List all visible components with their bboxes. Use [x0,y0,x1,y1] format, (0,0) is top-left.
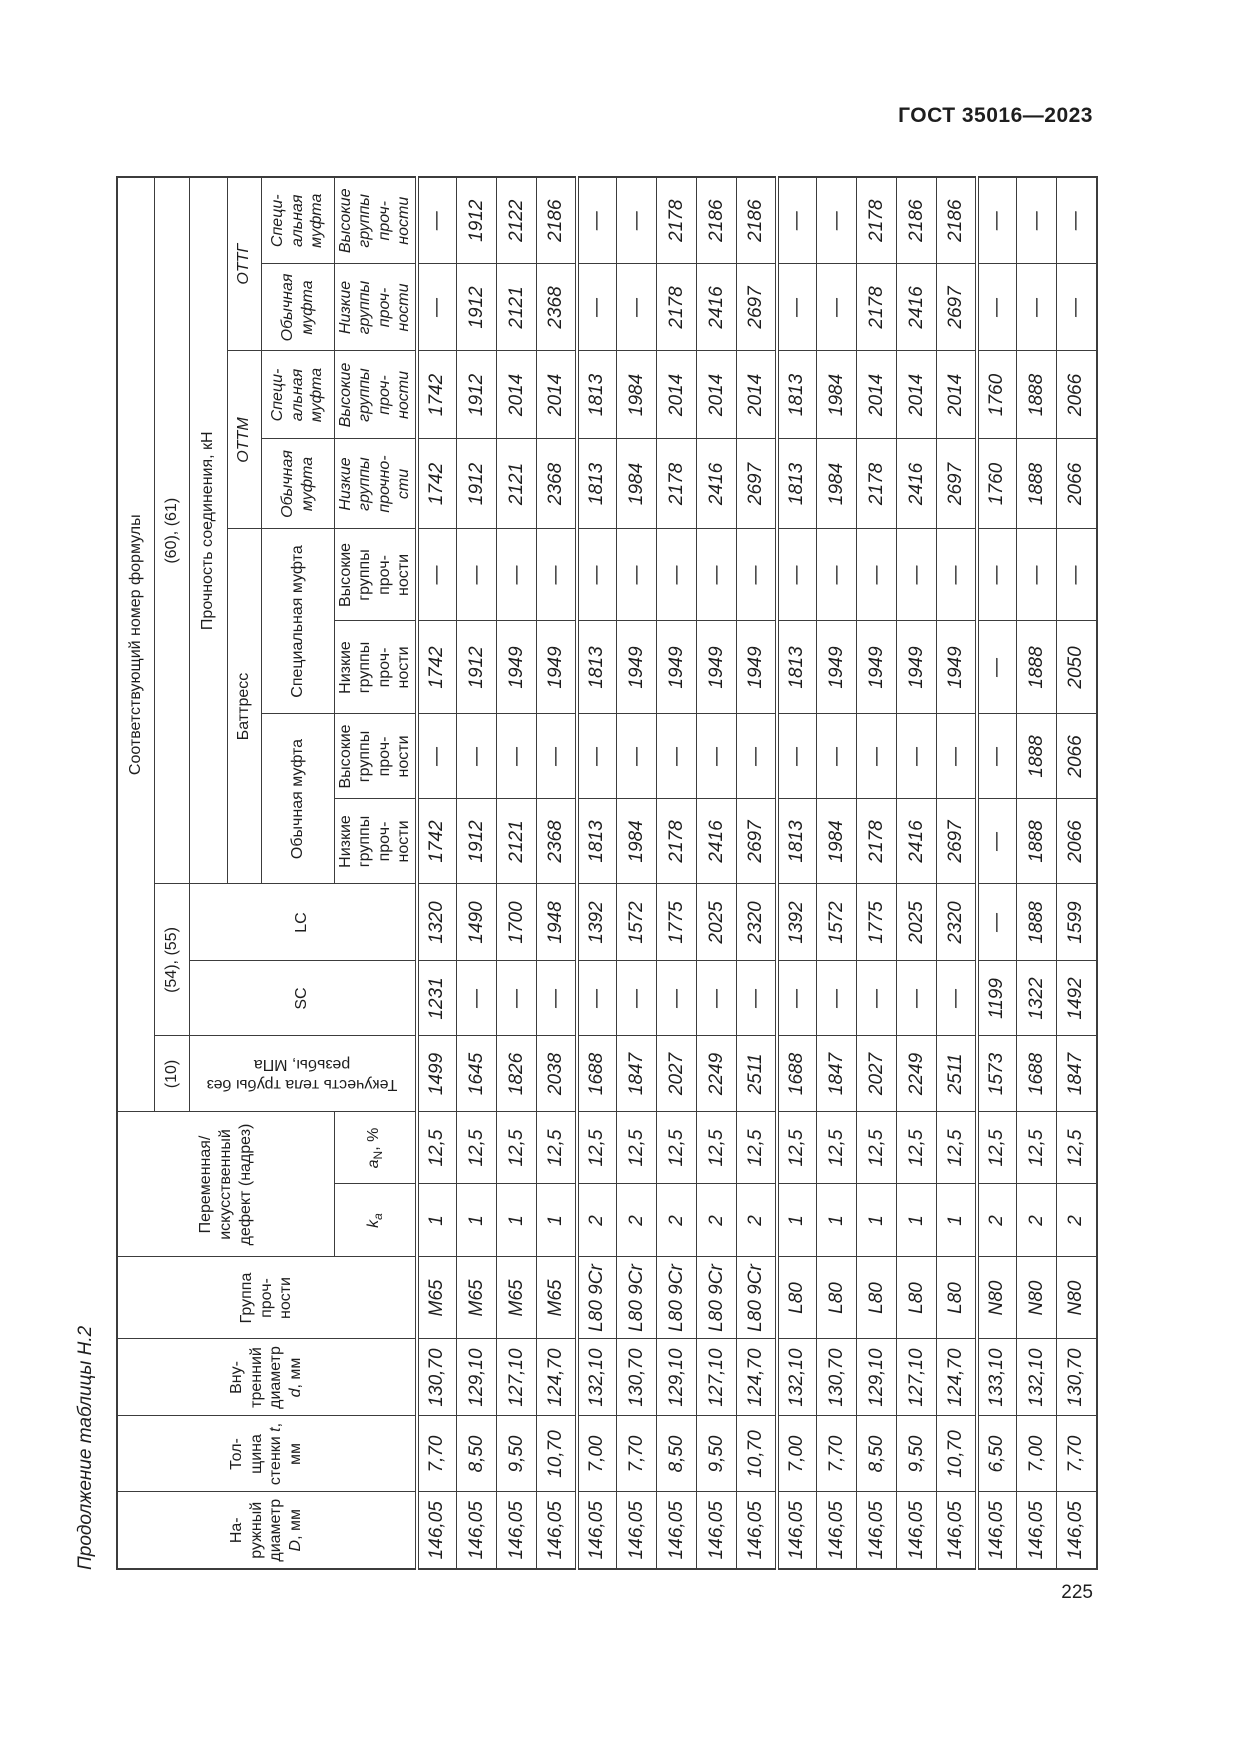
thread-group-ottm: ОТТМ [227,351,261,529]
data-cell-outer_diameter_D_mm: 146,05 [537,1492,577,1569]
data-cell-outer_diameter_D_mm: 146,05 [1017,1492,1057,1569]
data-cell-ottg_regular_low: — [817,264,857,351]
table-row: 146,058,50129,10L80112,52027—17752178—19… [857,177,897,1569]
data-cell-wall_thickness_t_mm: 7,00 [577,1416,617,1492]
data-cell-buttress_regular_high: — [817,714,857,799]
data-cell-wall_thickness_t_mm: 9,50 [497,1416,537,1492]
data-cell-a_N_percent: 12,5 [457,1112,497,1184]
data-cell-buttress_special_high: — [1057,529,1097,621]
data-cell-ottm_regular_low: 2697 [737,439,777,529]
data-cell-buttress_regular_low: 2121 [497,799,537,884]
data-cell-SC: — [817,961,857,1036]
data-cell-buttress_special_low: 1888 [1017,621,1057,714]
data-cell-SC: — [577,961,617,1036]
data-cell-outer_diameter_D_mm: 146,05 [617,1492,657,1569]
data-cell-a_N_percent: 12,5 [737,1112,777,1184]
data-cell-ottg_regular_low: 2697 [737,264,777,351]
data-cell-pipe_body_yield_MPa: 2027 [657,1036,697,1112]
data-cell-LC: 2025 [697,884,737,961]
table-row: 146,057,00132,10L80112,51688—13921813—18… [777,177,817,1569]
data-cell-buttress_special_low: 1949 [737,621,777,714]
data-cell-ottm_special_high: 1742 [417,351,457,439]
data-cell-ottg_special_high: — [817,177,857,264]
data-cell-buttress_regular_high: — [537,714,577,799]
data-cell-inner_diameter_d_mm: 132,10 [777,1339,817,1416]
data-cell-buttress_special_high: — [537,529,577,621]
data-cell-buttress_regular_high: — [617,714,657,799]
table-row: 146,058,50129,10М65112,51645—14901912—19… [457,177,497,1569]
data-cell-buttress_special_low: 1949 [817,621,857,714]
data-cell-pipe_body_yield_MPa: 1847 [1057,1036,1097,1112]
coupling-buttress-regular: Обычная муфта [261,714,334,884]
data-cell-inner_diameter_d_mm: 124,70 [737,1339,777,1416]
joint-strength-header: Прочность соединения, кН [189,177,227,884]
col-header-artificial-defect: Переменная/ искусственный дефект (надрез… [117,1112,334,1257]
data-cell-buttress_special_low: 1949 [537,621,577,714]
data-cell-ottm_regular_low: 1984 [817,439,857,529]
data-cell-ottm_special_high: 2014 [697,351,737,439]
data-cell-ottm_special_high: 1912 [457,351,497,439]
data-cell-strength_group: L80 [857,1257,897,1339]
data-cell-strength_group: М65 [457,1257,497,1339]
data-cell-wall_thickness_t_mm: 7,00 [1017,1416,1057,1492]
data-cell-buttress_special_high: — [657,529,697,621]
table-row: 146,059,50127,10М65112,51826—17002121—19… [497,177,537,1569]
data-cell-wall_thickness_t_mm: 8,50 [657,1416,697,1492]
data-cell-k_a: 2 [1017,1184,1057,1257]
data-cell-buttress_regular_high: — [657,714,697,799]
data-cell-buttress_regular_high: — [977,714,1017,799]
data-cell-buttress_special_high: — [497,529,537,621]
data-cell-ottg_regular_low: 2178 [657,264,697,351]
subgroup-buttress-regular-low: Низкие группы проч- ности [334,799,417,884]
data-cell-buttress_special_low: 1912 [457,621,497,714]
data-cell-strength_group: L80 9Cr [617,1257,657,1339]
data-cell-buttress_special_low: 1949 [697,621,737,714]
data-cell-a_N_percent: 12,5 [577,1112,617,1184]
data-cell-buttress_regular_low: 1984 [617,799,657,884]
data-cell-wall_thickness_t_mm: 8,50 [857,1416,897,1492]
data-cell-pipe_body_yield_MPa: 2249 [697,1036,737,1112]
data-cell-buttress_regular_low: 1742 [417,799,457,884]
data-cell-pipe_body_yield_MPa: 1847 [617,1036,657,1112]
data-cell-LC: 1775 [857,884,897,961]
data-cell-SC: — [457,961,497,1036]
data-cell-LC: 1392 [577,884,617,961]
table-row: 146,057,00132,10N80212,51688132218881888… [1017,177,1057,1569]
data-cell-ottm_special_high: 2014 [537,351,577,439]
data-cell-inner_diameter_d_mm: 130,70 [817,1339,857,1416]
col-header-sc: SC [189,961,417,1036]
data-cell-a_N_percent: 12,5 [817,1112,857,1184]
data-cell-outer_diameter_D_mm: 146,05 [497,1492,537,1569]
data-cell-k_a: 1 [777,1184,817,1257]
data-cell-pipe_body_yield_MPa: 2511 [737,1036,777,1112]
data-cell-pipe_body_yield_MPa: 1826 [497,1036,537,1112]
data-cell-k_a: 1 [537,1184,577,1257]
data-cell-wall_thickness_t_mm: 9,50 [897,1416,937,1492]
data-cell-SC: — [737,961,777,1036]
data-cell-buttress_regular_high: — [737,714,777,799]
data-cell-buttress_special_high: — [617,529,657,621]
data-cell-k_a: 2 [657,1184,697,1257]
data-cell-ottg_special_high: 2122 [497,177,537,264]
data-cell-ottm_regular_low: 2368 [537,439,577,529]
data-cell-ottm_regular_low: 2066 [1057,439,1097,529]
data-cell-buttress_regular_high: — [417,714,457,799]
data-cell-k_a: 2 [577,1184,617,1257]
data-cell-ottg_special_high: — [1057,177,1097,264]
data-cell-buttress_special_low: 1949 [897,621,937,714]
data-cell-LC: 2320 [737,884,777,961]
page-title: ГОСТ 35016—2023 [898,104,1093,128]
data-cell-wall_thickness_t_mm: 10,70 [937,1416,977,1492]
data-cell-pipe_body_yield_MPa: 2027 [857,1036,897,1112]
data-cell-LC: 2025 [897,884,937,961]
data-cell-SC: — [497,961,537,1036]
data-cell-inner_diameter_d_mm: 130,70 [417,1339,457,1416]
data-cell-strength_group: L80 9Cr [737,1257,777,1339]
data-cell-pipe_body_yield_MPa: 1688 [577,1036,617,1112]
data-cell-k_a: 1 [897,1184,937,1257]
data-cell-buttress_special_low: 1742 [417,621,457,714]
data-cell-buttress_regular_low: 2697 [737,799,777,884]
data-cell-buttress_special_high: — [417,529,457,621]
data-cell-buttress_special_high: — [697,529,737,621]
data-cell-ottm_regular_low: 1813 [777,439,817,529]
data-cell-ottm_special_high: 2066 [1057,351,1097,439]
subgroup-buttress-special-high: Высокие группы проч- ности [334,529,417,621]
rotated-table-sheet: Продолжение таблицы Н.2 На- ружный диаме… [75,178,1095,1570]
data-cell-inner_diameter_d_mm: 133,10 [977,1339,1017,1416]
data-cell-k_a: 1 [937,1184,977,1257]
data-cell-SC: 1231 [417,961,457,1036]
data-cell-pipe_body_yield_MPa: 1847 [817,1036,857,1112]
data-cell-ottg_special_high: — [777,177,817,264]
table-row: 146,057,70130,70М65112,51499123113201742… [417,177,457,1569]
data-cell-buttress_special_low: 1813 [577,621,617,714]
data-cell-a_N_percent: 12,5 [977,1112,1017,1184]
data-cell-ottg_regular_low: — [977,264,1017,351]
data-cell-buttress_regular_low: 2416 [897,799,937,884]
coupling-ottm-regular: Обычная муфта [261,439,334,529]
data-cell-outer_diameter_D_mm: 146,05 [457,1492,497,1569]
data-cell-ottg_regular_low: — [777,264,817,351]
data-cell-inner_diameter_d_mm: 130,70 [1057,1339,1097,1416]
data-cell-inner_diameter_d_mm: 129,10 [457,1339,497,1416]
data-cell-ottm_special_high: 1813 [577,351,617,439]
data-cell-a_N_percent: 12,5 [897,1112,937,1184]
table-body: 146,057,70130,70М65112,51499123113201742… [417,177,1097,1569]
data-cell-pipe_body_yield_MPa: 1573 [977,1036,1017,1112]
data-cell-pipe_body_yield_MPa: 1645 [457,1036,497,1112]
data-cell-buttress_special_high: — [737,529,777,621]
data-cell-LC: 1888 [1017,884,1057,961]
data-cell-buttress_special_high: — [897,529,937,621]
table-caption: Продолжение таблицы Н.2 [75,178,107,1570]
data-cell-ottm_special_high: 2014 [897,351,937,439]
data-cell-ottg_special_high: 2186 [537,177,577,264]
coupling-ottg-regular: Обычная муфта [261,264,334,351]
data-cell-a_N_percent: 12,5 [777,1112,817,1184]
data-cell-strength_group: L80 [777,1257,817,1339]
data-cell-ottm_regular_low: 2416 [697,439,737,529]
data-cell-buttress_special_high: — [577,529,617,621]
data-cell-outer_diameter_D_mm: 146,05 [417,1492,457,1569]
data-cell-k_a: 2 [977,1184,1017,1257]
data-table: На- ружный диаметр D, мм Тол- щина стенк… [116,176,1098,1570]
data-cell-ottm_special_high: 1760 [977,351,1017,439]
data-cell-pipe_body_yield_MPa: 1688 [1017,1036,1057,1112]
data-cell-ottm_special_high: 2014 [497,351,537,439]
col-header-outer-diameter: На- ружный диаметр D, мм [117,1492,417,1569]
data-cell-strength_group: L80 9Cr [657,1257,697,1339]
data-cell-buttress_special_low: 1949 [497,621,537,714]
data-cell-LC: 1599 [1057,884,1097,961]
data-cell-ottm_regular_low: 1760 [977,439,1017,529]
data-cell-ottm_special_high: 2014 [737,351,777,439]
data-cell-inner_diameter_d_mm: 127,10 [497,1339,537,1416]
table-row: 146,0510,70124,70М65112,52038—19482368—1… [537,177,577,1569]
data-cell-strength_group: М65 [497,1257,537,1339]
data-cell-buttress_regular_high: — [857,714,897,799]
data-cell-outer_diameter_D_mm: 146,05 [657,1492,697,1569]
data-cell-buttress_regular_low: 2178 [857,799,897,884]
data-cell-buttress_special_high: — [817,529,857,621]
data-cell-buttress_special_low: 1949 [937,621,977,714]
data-cell-LC: 1392 [777,884,817,961]
data-cell-pipe_body_yield_MPa: 1499 [417,1036,457,1112]
col-header-strength-group: Группа проч- ности [117,1257,417,1339]
data-cell-buttress_regular_low: 1912 [457,799,497,884]
data-cell-strength_group: N80 [1017,1257,1057,1339]
data-cell-ottg_regular_low: 2697 [937,264,977,351]
data-cell-outer_diameter_D_mm: 146,05 [857,1492,897,1569]
data-cell-buttress_regular_low: 2697 [937,799,977,884]
data-cell-LC: 1700 [497,884,537,961]
data-cell-strength_group: L80 [937,1257,977,1339]
data-cell-LC: 1572 [617,884,657,961]
data-cell-a_N_percent: 12,5 [497,1112,537,1184]
subgroup-buttress-special-low: Низкие группы проч- ности [334,621,417,714]
data-cell-buttress_regular_high: 2066 [1057,714,1097,799]
col-header-an: aN, % [334,1112,417,1184]
data-cell-ottg_regular_low: — [417,264,457,351]
data-cell-buttress_regular_high: — [457,714,497,799]
data-cell-ottg_regular_low: — [1017,264,1057,351]
data-cell-ottg_regular_low: — [617,264,657,351]
data-cell-k_a: 1 [817,1184,857,1257]
data-cell-ottm_regular_low: 1888 [1017,439,1057,529]
subgroup-ottm-special-high: Высокие группы проч- ности [334,351,417,439]
data-cell-ottg_regular_low: 2178 [857,264,897,351]
data-cell-wall_thickness_t_mm: 10,70 [737,1416,777,1492]
data-cell-k_a: 2 [617,1184,657,1257]
data-cell-LC: 1320 [417,884,457,961]
data-cell-buttress_special_low: 1949 [857,621,897,714]
data-cell-strength_group: L80 [817,1257,857,1339]
data-cell-strength_group: N80 [1057,1257,1097,1339]
data-cell-ottg_special_high: — [417,177,457,264]
data-cell-strength_group: L80 9Cr [697,1257,737,1339]
data-cell-ottm_special_high: 1984 [817,351,857,439]
data-cell-k_a: 1 [457,1184,497,1257]
data-cell-ottg_special_high: 1912 [457,177,497,264]
data-cell-k_a: 1 [417,1184,457,1257]
coupling-ottm-special: Специ- альная муфта [261,351,334,439]
data-cell-LC: 1572 [817,884,857,961]
data-cell-buttress_regular_high: — [937,714,977,799]
data-cell-buttress_regular_high: — [697,714,737,799]
data-cell-buttress_regular_low: 2368 [537,799,577,884]
formula-ref-joint: (60), (61) [154,177,189,884]
data-cell-buttress_regular_low: 2178 [657,799,697,884]
data-cell-buttress_regular_low: 2066 [1057,799,1097,884]
table-row: 146,056,50133,10N80212,515731199—————176… [977,177,1017,1569]
data-cell-a_N_percent: 12,5 [537,1112,577,1184]
data-cell-ottg_special_high: — [577,177,617,264]
data-cell-ottg_special_high: 2186 [737,177,777,264]
table-row: 146,057,70130,70N80212,51847149215992066… [1057,177,1097,1569]
data-cell-pipe_body_yield_MPa: 2511 [937,1036,977,1112]
data-cell-buttress_regular_low: 1813 [777,799,817,884]
data-cell-LC: 1490 [457,884,497,961]
data-cell-strength_group: N80 [977,1257,1017,1339]
data-cell-outer_diameter_D_mm: 146,05 [577,1492,617,1569]
data-cell-k_a: 1 [857,1184,897,1257]
data-cell-ottg_regular_low: 2121 [497,264,537,351]
data-cell-a_N_percent: 12,5 [417,1112,457,1184]
data-cell-ottm_special_high: 2014 [657,351,697,439]
data-cell-buttress_regular_high: — [777,714,817,799]
data-cell-buttress_special_low: 1949 [657,621,697,714]
data-cell-buttress_special_high: — [1017,529,1057,621]
data-cell-ottm_special_high: 2014 [937,351,977,439]
data-cell-ottm_regular_low: 1984 [617,439,657,529]
data-cell-strength_group: М65 [417,1257,457,1339]
table-row: 146,059,50127,10L80112,52249—20252416—19… [897,177,937,1569]
col-header-lc: LC [189,884,417,961]
data-cell-inner_diameter_d_mm: 124,70 [937,1339,977,1416]
data-cell-buttress_special_high: — [457,529,497,621]
data-cell-ottm_regular_low: 1742 [417,439,457,529]
data-cell-SC: 1199 [977,961,1017,1036]
table-row: 146,059,50127,10L80 9Cr212,52249—2025241… [697,177,737,1569]
data-cell-ottg_special_high: 2178 [857,177,897,264]
table-row: 146,057,00132,10L80 9Cr212,51688—1392181… [577,177,617,1569]
data-cell-inner_diameter_d_mm: 127,10 [697,1339,737,1416]
data-cell-buttress_special_high: — [857,529,897,621]
data-cell-ottg_regular_low: 2368 [537,264,577,351]
data-cell-pipe_body_yield_MPa: 1688 [777,1036,817,1112]
data-cell-outer_diameter_D_mm: 146,05 [737,1492,777,1569]
data-cell-inner_diameter_d_mm: 132,10 [577,1339,617,1416]
data-cell-ottm_regular_low: 2697 [937,439,977,529]
data-cell-ottm_special_high: 1813 [777,351,817,439]
data-cell-LC: 2320 [937,884,977,961]
data-cell-ottm_special_high: 1888 [1017,351,1057,439]
subgroup-buttress-regular-high: Высокие группы проч- ности [334,714,417,799]
table-row: 146,057,70130,70L80 9Cr212,51847—1572198… [617,177,657,1569]
data-cell-wall_thickness_t_mm: 6,50 [977,1416,1017,1492]
data-cell-ottg_special_high: — [977,177,1017,264]
data-cell-a_N_percent: 12,5 [1057,1112,1097,1184]
data-cell-a_N_percent: 12,5 [937,1112,977,1184]
data-cell-inner_diameter_d_mm: 129,10 [657,1339,697,1416]
data-cell-buttress_regular_low: 1888 [1017,799,1057,884]
data-cell-ottm_special_high: 1984 [617,351,657,439]
table-row: 146,057,70130,70L80112,51847—15721984—19… [817,177,857,1569]
coupling-buttress-special: Специальная муфта [261,529,334,714]
data-cell-k_a: 1 [497,1184,537,1257]
col-header-pipe-body-yield: Текучесть тела трубы без резьбы, МПа [189,1036,417,1112]
data-cell-outer_diameter_D_mm: 146,05 [977,1492,1017,1569]
data-cell-ottg_special_high: — [617,177,657,264]
data-cell-LC: 1948 [537,884,577,961]
data-cell-inner_diameter_d_mm: 129,10 [857,1339,897,1416]
data-cell-ottm_special_high: 2014 [857,351,897,439]
data-cell-SC: — [697,961,737,1036]
col-header-ka: ka [334,1184,417,1257]
data-cell-strength_group: М65 [537,1257,577,1339]
data-cell-ottm_regular_low: 2178 [657,439,697,529]
data-cell-outer_diameter_D_mm: 146,05 [897,1492,937,1569]
data-cell-buttress_regular_low: 1813 [577,799,617,884]
data-cell-pipe_body_yield_MPa: 2249 [897,1036,937,1112]
data-cell-LC: 1775 [657,884,697,961]
data-cell-wall_thickness_t_mm: 7,70 [417,1416,457,1492]
data-cell-buttress_regular_low: 1984 [817,799,857,884]
subgroup-ottg-special-high: Высокие группы проч- ности [334,177,417,264]
formula-ref-sc-lc: (54), (55) [154,884,189,1036]
data-cell-a_N_percent: 12,5 [1017,1112,1057,1184]
data-cell-buttress_regular_low: — [977,799,1017,884]
data-cell-buttress_special_low: 2050 [1057,621,1097,714]
data-cell-ottg_regular_low: — [577,264,617,351]
data-cell-buttress_special_high: — [977,529,1017,621]
table-header: На- ружный диаметр D, мм Тол- щина стенк… [117,177,417,1569]
data-cell-buttress_regular_high: 1888 [1017,714,1057,799]
data-cell-inner_diameter_d_mm: 124,70 [537,1339,577,1416]
table-row: 146,0510,70124,70L80112,52511—23202697—1… [937,177,977,1569]
data-cell-LC: — [977,884,1017,961]
data-cell-ottg_regular_low: 2416 [897,264,937,351]
subgroup-ottm-regular-low: Низкие группы прочно- сти [334,439,417,529]
data-cell-wall_thickness_t_mm: 7,70 [617,1416,657,1492]
data-cell-ottg_regular_low: 1912 [457,264,497,351]
data-cell-wall_thickness_t_mm: 9,50 [697,1416,737,1492]
formula-ref-yield: (10) [154,1036,189,1112]
data-cell-buttress_regular_high: — [577,714,617,799]
data-cell-a_N_percent: 12,5 [857,1112,897,1184]
data-cell-ottm_regular_low: 2121 [497,439,537,529]
data-cell-ottg_regular_low: 2416 [697,264,737,351]
subgroup-ottg-regular-low: Низкие группы проч- ности [334,264,417,351]
data-cell-ottm_regular_low: 2178 [857,439,897,529]
data-cell-a_N_percent: 12,5 [617,1112,657,1184]
thread-group-ottg: ОТТГ [227,177,261,351]
data-cell-wall_thickness_t_mm: 7,70 [1057,1416,1097,1492]
data-cell-wall_thickness_t_mm: 8,50 [457,1416,497,1492]
data-cell-SC: — [657,961,697,1036]
data-cell-ottg_regular_low: — [1057,264,1097,351]
data-cell-wall_thickness_t_mm: 7,00 [777,1416,817,1492]
data-cell-SC: — [897,961,937,1036]
formula-number-header: Соответствующий номер формулы [117,177,154,1112]
data-cell-SC: 1492 [1057,961,1097,1036]
data-cell-buttress_regular_high: — [897,714,937,799]
data-cell-SC: — [617,961,657,1036]
